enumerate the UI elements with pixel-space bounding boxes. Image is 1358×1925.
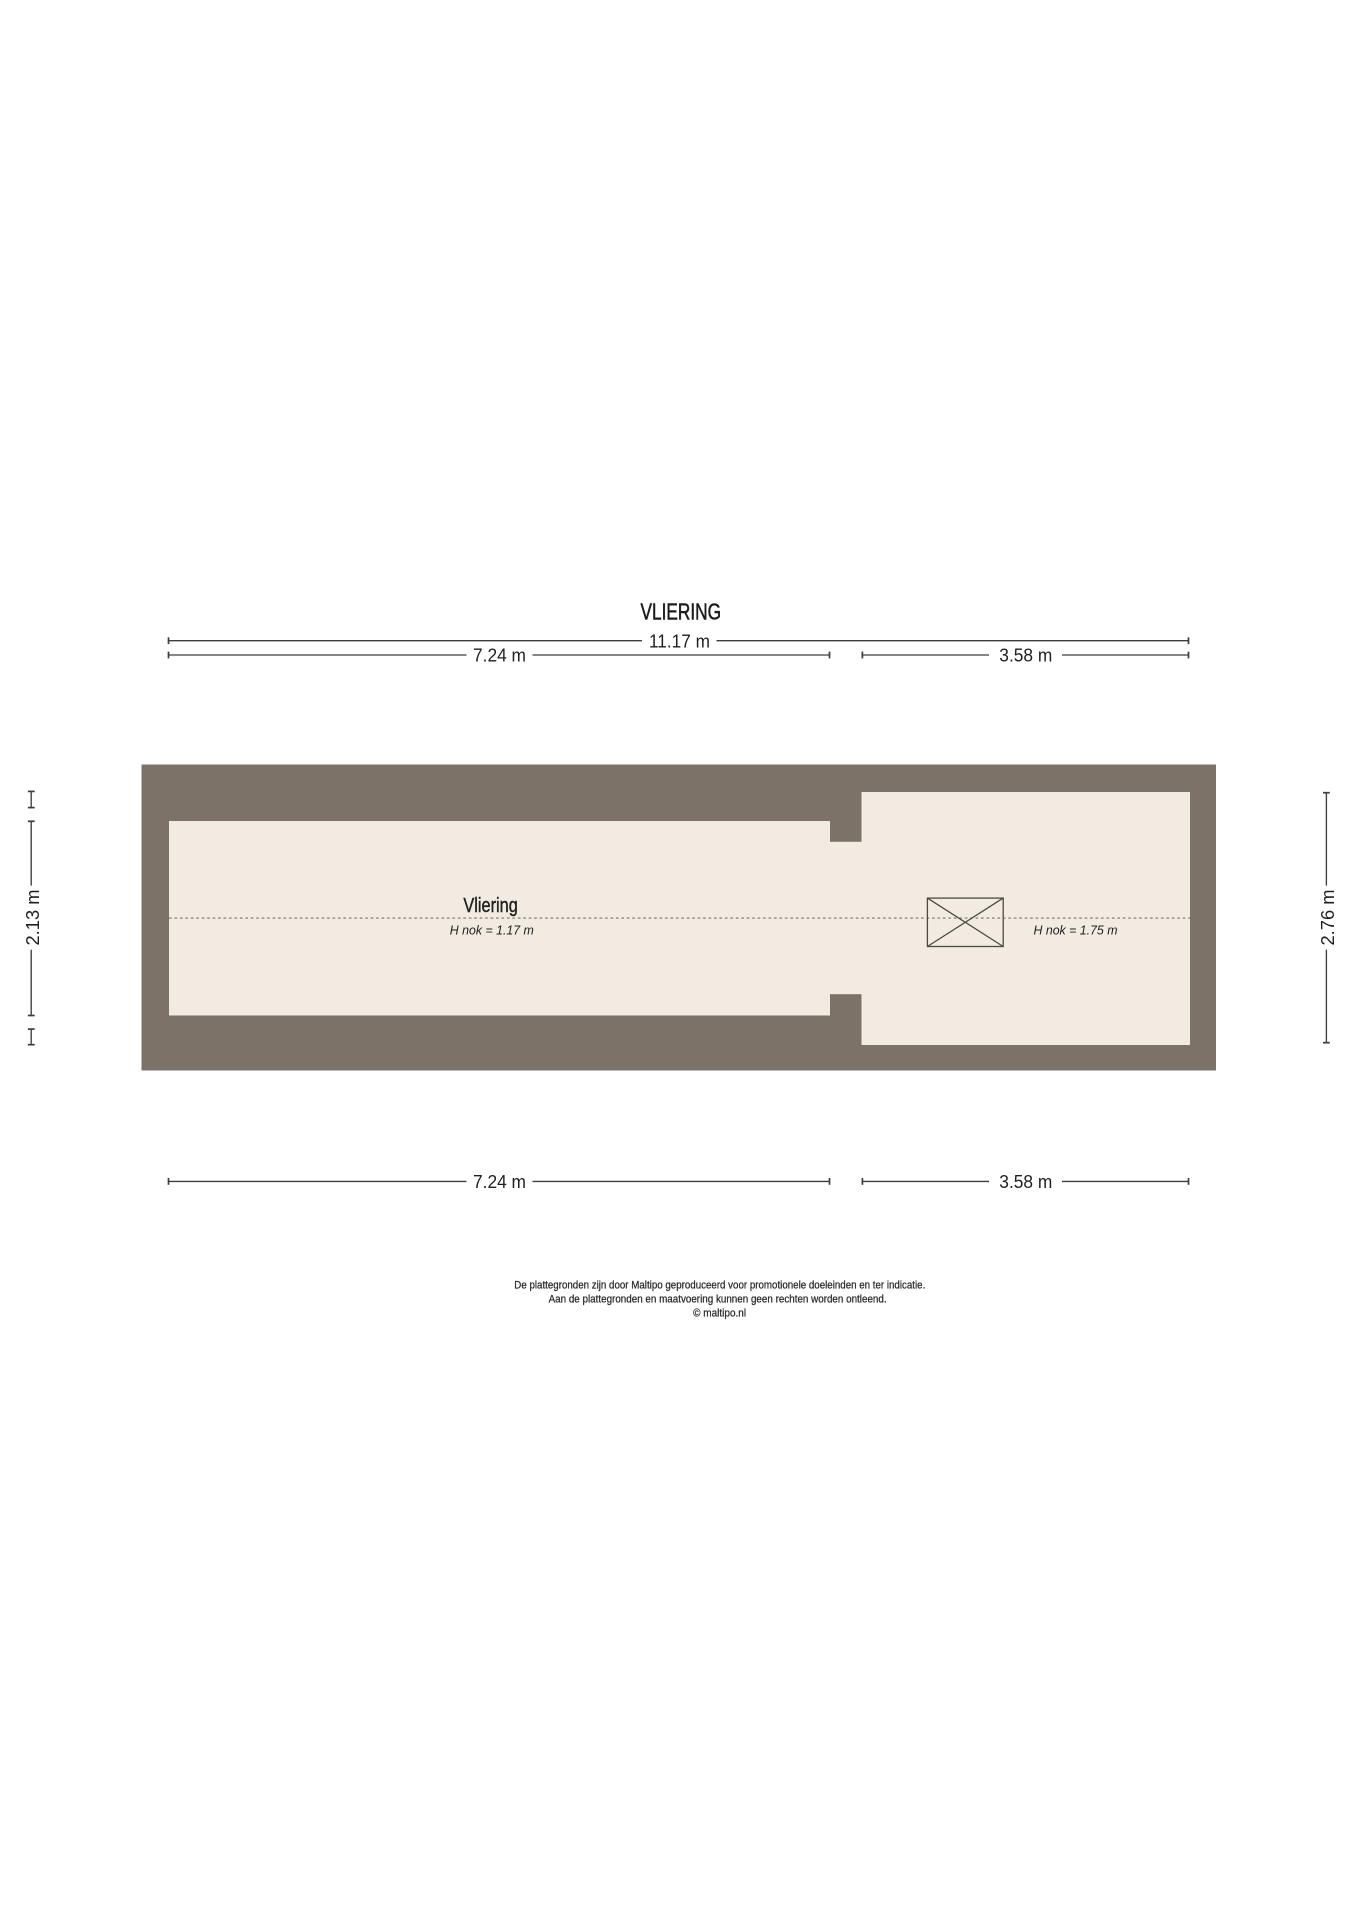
svg-text:De plattegronden zijn door Mal: De plattegronden zijn door Maltipo gepro… (514, 1280, 925, 1292)
svg-text:Aan de plattegronden en maatvo: Aan de plattegronden en maatvoering kunn… (549, 1294, 887, 1306)
svg-text:11.17 m: 11.17 m (649, 631, 710, 651)
svg-text:2.76 m: 2.76 m (1318, 890, 1338, 946)
svg-text:© maltipo.nl: © maltipo.nl (693, 1308, 746, 1320)
svg-text:2.13 m: 2.13 m (23, 890, 43, 946)
svg-text:H nok = 1.75 m: H nok = 1.75 m (1034, 923, 1118, 938)
svg-text:3.58 m: 3.58 m (999, 1172, 1052, 1192)
svg-text:VLIERING: VLIERING (641, 599, 722, 625)
svg-text:7.24 m: 7.24 m (473, 1172, 526, 1192)
svg-text:7.24 m: 7.24 m (473, 646, 526, 666)
svg-text:3.58 m: 3.58 m (999, 646, 1052, 666)
svg-text:H nok = 1.17 m: H nok = 1.17 m (450, 923, 534, 938)
svg-text:Vliering: Vliering (463, 894, 518, 917)
